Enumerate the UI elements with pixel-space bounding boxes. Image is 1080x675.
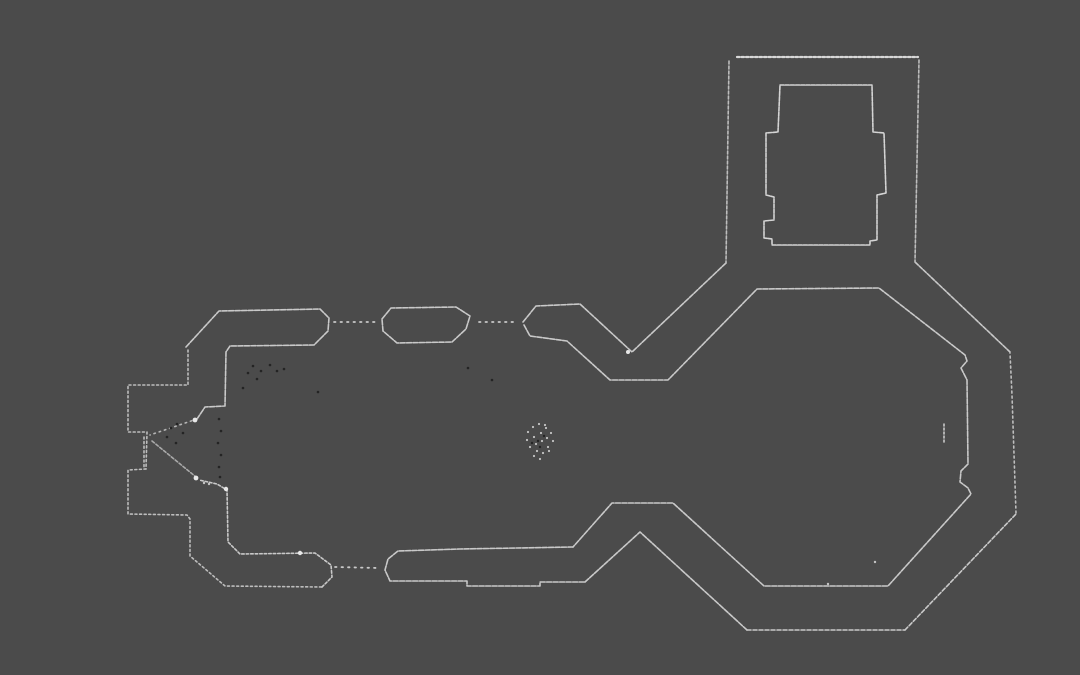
speckle-dot bbox=[175, 442, 178, 445]
speckle-dot bbox=[203, 482, 205, 484]
speckle-dot bbox=[247, 372, 250, 375]
speckle-dot bbox=[874, 561, 876, 563]
speckle-dot bbox=[539, 458, 541, 460]
speckle-dot bbox=[536, 450, 538, 452]
speckle-dot bbox=[166, 436, 169, 439]
speckle-dot bbox=[541, 440, 543, 442]
speckle-dot bbox=[242, 387, 245, 390]
door-blob-2 bbox=[224, 487, 228, 491]
speckle-dot bbox=[538, 423, 540, 425]
speckle-dot bbox=[218, 466, 221, 469]
speckle-dot bbox=[533, 455, 535, 457]
speckle-dot bbox=[218, 418, 221, 421]
speckle-dot bbox=[269, 364, 272, 367]
speckle-dot bbox=[182, 432, 185, 435]
speckle-dot bbox=[542, 452, 544, 454]
speckle-dot bbox=[531, 442, 533, 444]
south-wall-blob bbox=[298, 551, 302, 555]
speckle-dot bbox=[260, 370, 263, 373]
speckle-dot bbox=[539, 446, 541, 448]
speckle-dot bbox=[544, 424, 546, 426]
door-blob-3 bbox=[193, 418, 198, 423]
speckle-dot bbox=[220, 430, 223, 433]
speckle-dot bbox=[283, 368, 286, 371]
speckle-dot bbox=[535, 443, 537, 445]
speckle-dot bbox=[491, 379, 494, 382]
speckle-dot bbox=[219, 476, 222, 479]
speckle-dot bbox=[276, 370, 279, 373]
speckle-dot bbox=[545, 427, 547, 429]
speckle-dot bbox=[548, 450, 550, 452]
speckle-dot bbox=[533, 436, 535, 438]
speckle-dot bbox=[550, 432, 552, 434]
map-canvas[interactable] bbox=[0, 0, 1080, 675]
map-viewport bbox=[0, 0, 1080, 675]
speckle-dot bbox=[170, 427, 173, 430]
speckle-dot bbox=[526, 439, 528, 441]
speckle-dot bbox=[527, 431, 529, 433]
speckle-dot bbox=[532, 426, 534, 428]
speckle-dot bbox=[176, 423, 179, 426]
speckle-dot bbox=[537, 440, 539, 442]
waist-blob bbox=[626, 350, 630, 354]
speckle-dot bbox=[529, 446, 531, 448]
speckle-dot bbox=[547, 446, 549, 448]
speckle-dot bbox=[256, 378, 259, 381]
speckle-dot bbox=[827, 583, 829, 585]
speckle-dot bbox=[467, 367, 470, 370]
speckle-dot bbox=[208, 483, 210, 485]
speckle-dot bbox=[543, 435, 545, 437]
door-blob-1 bbox=[194, 476, 199, 481]
speckle-dot bbox=[217, 442, 220, 445]
speckle-dot bbox=[220, 454, 223, 457]
speckle-dot bbox=[252, 365, 255, 368]
speckle-dot bbox=[552, 440, 554, 442]
speckle-dot bbox=[317, 391, 320, 394]
speckle-dot bbox=[540, 432, 542, 434]
speckle-dot bbox=[546, 437, 548, 439]
